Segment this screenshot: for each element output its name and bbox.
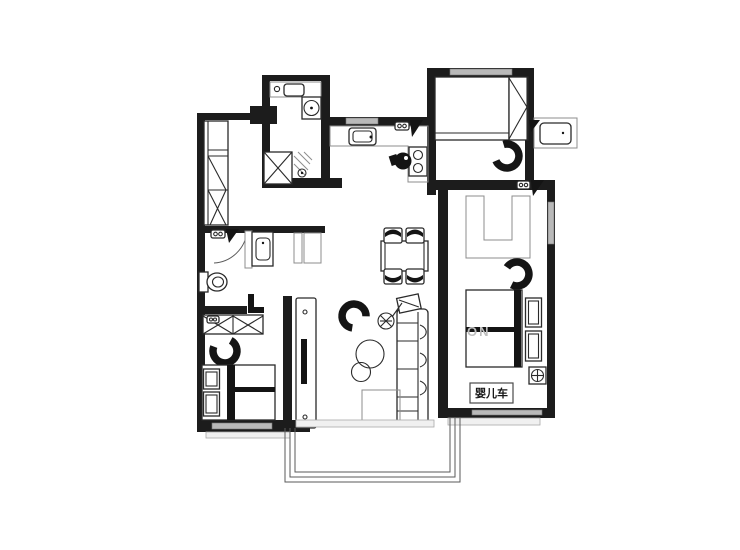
armchair-icon [211, 339, 240, 366]
watermark-text: ON [467, 324, 491, 339]
stove-icon [409, 147, 427, 176]
toilet-icon [199, 272, 227, 292]
double-bed-icon [202, 365, 275, 420]
window-strip [212, 423, 272, 429]
pillow-icon [526, 298, 542, 327]
ac-unit-icon [540, 123, 571, 144]
window-sill [448, 418, 540, 425]
armchair-icon [495, 142, 523, 172]
window-strip [346, 118, 378, 124]
master-bedroom: 婴儿车 ON [448, 290, 546, 425]
ac-platform [529, 118, 577, 148]
door-hinge-icon [211, 229, 239, 243]
window-sill [206, 432, 290, 438]
bathroom [199, 229, 273, 313]
rug-icon [362, 390, 400, 424]
sofa-icon [397, 309, 428, 426]
wardrobe-icon [509, 77, 528, 140]
dining-table-icon [381, 241, 428, 271]
pillow-icon [526, 331, 542, 361]
tiled-floor [294, 152, 312, 175]
tv-icon [301, 339, 307, 384]
double-bed-icon [435, 77, 509, 140]
open-door-leaf [248, 294, 264, 313]
laundry-sink-icon [284, 84, 304, 96]
dining-chair-icon [384, 228, 402, 243]
ceiling-lamp-icon [529, 367, 546, 384]
armchair-icon [337, 299, 368, 330]
study-closet [466, 180, 544, 288]
balcony-threshold [296, 420, 434, 427]
floor-plan-canvas: 婴儿车 ON [0, 0, 740, 550]
pot-icon [389, 153, 412, 170]
laundry-room [270, 82, 321, 119]
desk-chair-icon [506, 259, 531, 287]
top-right-bedroom [435, 77, 528, 172]
dining-chair-icon [384, 269, 402, 284]
tv-console-icon [296, 298, 316, 428]
stroller-label: 婴儿车 [475, 386, 508, 400]
window-strip [472, 410, 542, 415]
left-bedroom [202, 315, 290, 438]
kitchen [330, 120, 428, 182]
floor-plan-drawing: 婴儿车 ON [0, 0, 740, 550]
dining-chair-icon [406, 228, 424, 243]
stroller-area: 婴儿车 [470, 383, 513, 403]
door-hinge-icon [207, 316, 219, 323]
window-strip [450, 69, 512, 75]
window-strip [548, 202, 554, 244]
door-hinge-icon [395, 120, 423, 137]
desk-closet-icon [466, 196, 530, 258]
coffee-table-icon [356, 340, 384, 368]
dining-chair-icon [406, 269, 424, 284]
entry-cabinet-icon [204, 121, 228, 225]
